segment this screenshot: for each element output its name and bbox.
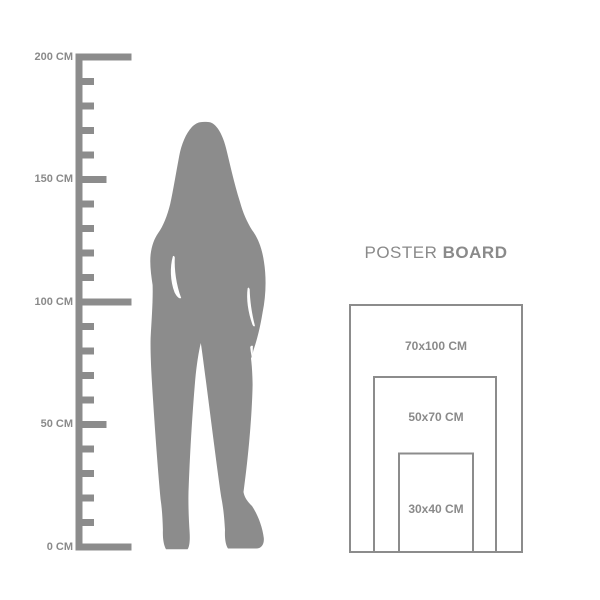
ruler-label-0cm: 0 CM — [47, 540, 73, 554]
poster-title-bold: BOARD — [443, 243, 508, 262]
ruler-tick-180 — [76, 103, 95, 110]
size-label-30x40: 30x40 CM — [376, 502, 496, 516]
ruler-tick-140 — [76, 201, 95, 208]
ruler-tick-70 — [76, 372, 95, 379]
ruler-label-100cm: 100 CM — [34, 295, 73, 309]
ruler-tick-80 — [76, 348, 95, 355]
ruler-tick-170 — [76, 127, 95, 134]
poster-board-title: POSTER BOARD — [336, 243, 536, 263]
ruler-tick-40 — [76, 446, 95, 453]
size-label-50x70: 50x70 CM — [376, 410, 496, 424]
ruler-tick-160 — [76, 152, 95, 159]
woman-silhouette-body — [150, 122, 265, 549]
woman-silhouette-icon — [150, 122, 265, 549]
ruler-tick-30 — [76, 470, 95, 477]
ruler-label-50cm: 50 CM — [41, 417, 73, 431]
size-comparison-diagram: 200 CM 150 CM 100 CM 50 CM 0 CM POSTER B… — [0, 0, 600, 600]
diagram-graphics — [0, 0, 600, 600]
poster-title-regular: POSTER — [365, 243, 438, 262]
ruler-tick-130 — [76, 225, 95, 232]
height-ruler-icon — [76, 54, 132, 551]
ruler-tick-120 — [76, 250, 95, 257]
ruler-tick-10 — [76, 519, 95, 526]
ruler-label-150cm: 150 CM — [34, 172, 73, 186]
ruler-tick-110 — [76, 274, 95, 281]
ruler-tick-90 — [76, 323, 95, 330]
poster-rect-50x70 — [374, 377, 496, 552]
size-label-70x100: 70x100 CM — [376, 339, 496, 353]
ruler-tick-20 — [76, 495, 95, 502]
ruler-tick-150 — [76, 176, 107, 183]
ruler-tick-190 — [76, 78, 95, 85]
ruler-tick-60 — [76, 397, 95, 404]
ruler-tick-200 — [76, 54, 132, 61]
ruler-tick-0 — [76, 544, 132, 551]
ruler-tick-100 — [76, 299, 132, 306]
ruler-label-200cm: 200 CM — [34, 50, 73, 64]
ruler-tick-50 — [76, 421, 107, 428]
